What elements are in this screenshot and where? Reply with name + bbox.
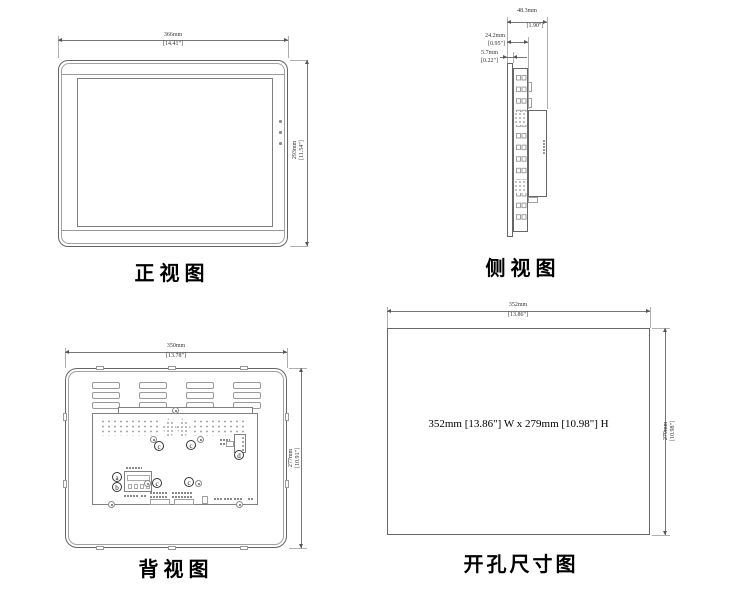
perforation-grid	[100, 419, 160, 436]
arrowhead-icon	[524, 40, 528, 44]
cutout-note: 352mm [13.86"] W x 279mm [10.98"] H	[387, 418, 650, 431]
vent-slot	[233, 392, 261, 399]
callout-c: c	[154, 441, 164, 451]
micro-label	[126, 467, 142, 469]
connector-micro-label	[172, 492, 192, 494]
port-icon	[224, 498, 232, 500]
extension-line	[287, 348, 288, 368]
screw-icon	[197, 436, 204, 443]
mount-tab	[96, 546, 104, 550]
screw-icon	[144, 480, 151, 487]
arrowhead-icon	[503, 55, 507, 59]
mount-clip	[528, 98, 532, 108]
dimension-line	[307, 60, 308, 246]
vent-slot	[92, 402, 120, 409]
back-height-mm: 277mm	[288, 449, 295, 467]
bracket-hole	[242, 437, 244, 439]
com-port-connector	[174, 499, 194, 505]
terminal-pin	[134, 484, 138, 489]
cutout-height-mm: 279mm	[663, 422, 670, 440]
mount-bar	[118, 407, 253, 414]
extension-line	[290, 246, 308, 247]
callout-b: b	[112, 482, 122, 492]
front-height-dim: 293mm [11.54"]	[292, 128, 306, 172]
back-view: 350mm [13.78"] c c a b	[40, 340, 370, 600]
cutout-view: 352mm [13.86"] 352mm [13.86"] W x 279mm …	[380, 290, 730, 610]
arrowhead-icon	[58, 38, 62, 42]
mount-tab	[168, 366, 176, 370]
side-depth-total-in: [1.90"]	[505, 23, 565, 30]
connector-micro-label	[172, 496, 192, 498]
ground-symbol-icon	[141, 495, 147, 497]
com-port-connector	[150, 499, 170, 505]
side-depth-total-mm: 48.3mm	[497, 8, 557, 15]
callout-c: c	[152, 478, 162, 488]
terminal-pin	[128, 484, 132, 489]
arrowhead-icon	[299, 544, 303, 548]
arrowhead-icon	[663, 328, 667, 332]
extension-line	[652, 328, 670, 329]
front-width-mm: 366mm	[143, 32, 203, 39]
arrowhead-icon	[65, 350, 69, 354]
screw-icon	[172, 407, 179, 414]
front-view: 366mm [14.41"] 293mm [11.54"] 正视图	[40, 10, 340, 288]
back-width-in: [13.78"]	[146, 353, 206, 360]
cutout-width-in: [13.86"]	[488, 312, 548, 319]
front-height-in: [11.54"]	[299, 140, 306, 160]
front-indicator-icon	[279, 142, 282, 145]
arrowhead-icon	[305, 60, 309, 64]
side-depth-body-in: [0.95"]	[470, 41, 505, 48]
technical-drawing-canvas: 366mm [14.41"] 293mm [11.54"] 正视图 48.3mm…	[0, 0, 730, 616]
mount-tab	[63, 480, 67, 488]
connector-micro-label	[150, 496, 168, 498]
cutout-rectangle	[387, 328, 650, 535]
cutout-view-title: 开孔尺寸图	[451, 548, 591, 577]
mount-tab	[168, 546, 176, 550]
arrowhead-icon	[663, 531, 667, 535]
screw-icon	[195, 480, 202, 487]
port-icon	[248, 498, 254, 500]
bracket-hole	[242, 445, 244, 447]
side-screw-patch	[514, 180, 527, 193]
front-width-in: [14.41"]	[143, 41, 203, 48]
arrowhead-icon	[305, 242, 309, 246]
vent-slot	[233, 382, 261, 389]
back-view-title: 背视图	[96, 553, 256, 582]
back-height-dim: 277mm [10.91"]	[288, 436, 302, 480]
callout-c: c	[184, 477, 194, 487]
side-screw-patch	[514, 112, 527, 125]
port-icon	[214, 498, 222, 500]
mount-tab	[285, 413, 289, 421]
side-depth-body-mm: 24.2mm	[470, 33, 505, 40]
vent-slot	[92, 382, 120, 389]
mount-tab	[96, 366, 104, 370]
arrowhead-icon	[283, 350, 287, 354]
vent-slot	[186, 392, 214, 399]
side-view: 48.3mm [1.90"] 24.2mm [0.95"] 5.7mm [0.2…	[470, 5, 630, 280]
callout-d: d	[234, 450, 244, 460]
callout-c: c	[186, 440, 196, 450]
extension-line	[650, 307, 651, 328]
back-height-in: [10.91"]	[295, 448, 302, 468]
front-height-mm: 293mm	[292, 141, 299, 159]
vent-slot	[139, 382, 167, 389]
micro-label	[124, 495, 138, 497]
screw-icon	[236, 501, 243, 508]
vent-slot	[186, 382, 214, 389]
vent-slot	[92, 392, 120, 399]
usb-port-connector	[202, 496, 208, 504]
side-depth-bezel-in: [0.22"]	[470, 58, 498, 65]
bezel-bottom-line	[62, 230, 284, 231]
screen-area	[77, 78, 273, 227]
port-icon	[234, 498, 242, 500]
arrowhead-icon	[513, 55, 517, 59]
screw-icon	[108, 501, 115, 508]
extension-line	[289, 548, 307, 549]
side-depth-bezel-mm: 5.7mm	[470, 50, 498, 57]
side-vent-pattern	[516, 75, 528, 225]
vent-slot	[139, 392, 167, 399]
front-indicator-icon	[279, 131, 282, 134]
mount-tab	[240, 366, 248, 370]
mount-tab	[285, 480, 289, 488]
antenna-bracket-arm	[226, 441, 234, 447]
cutout-width-mm: 352mm	[488, 302, 548, 309]
extension-line	[652, 535, 670, 536]
vent-grid	[92, 382, 261, 409]
side-rear-foot	[528, 197, 538, 203]
arrowhead-icon	[507, 40, 511, 44]
bezel-top-line	[62, 74, 284, 75]
arrowhead-icon	[646, 309, 650, 313]
side-micro-label	[543, 140, 545, 154]
front-indicator-icon	[279, 120, 282, 123]
mount-clip	[528, 82, 532, 92]
extension-line	[289, 368, 307, 369]
side-view-title: 侧视图	[468, 252, 578, 281]
extension-line	[547, 17, 548, 109]
extension-line	[288, 36, 289, 58]
back-width-mm: 350mm	[146, 343, 206, 350]
arrowhead-icon	[387, 309, 391, 313]
callout-a: a	[112, 472, 122, 482]
bracket-hole	[242, 441, 244, 443]
front-view-title: 正视图	[92, 257, 252, 286]
cutout-height-in: [10.98"]	[670, 421, 677, 441]
mount-tab	[240, 546, 248, 550]
mount-tab	[63, 413, 67, 421]
cutout-height-dim: 279mm [10.98"]	[663, 409, 677, 453]
arrowhead-icon	[299, 368, 303, 372]
connector-micro-label	[150, 492, 168, 494]
arrowhead-icon	[284, 38, 288, 42]
